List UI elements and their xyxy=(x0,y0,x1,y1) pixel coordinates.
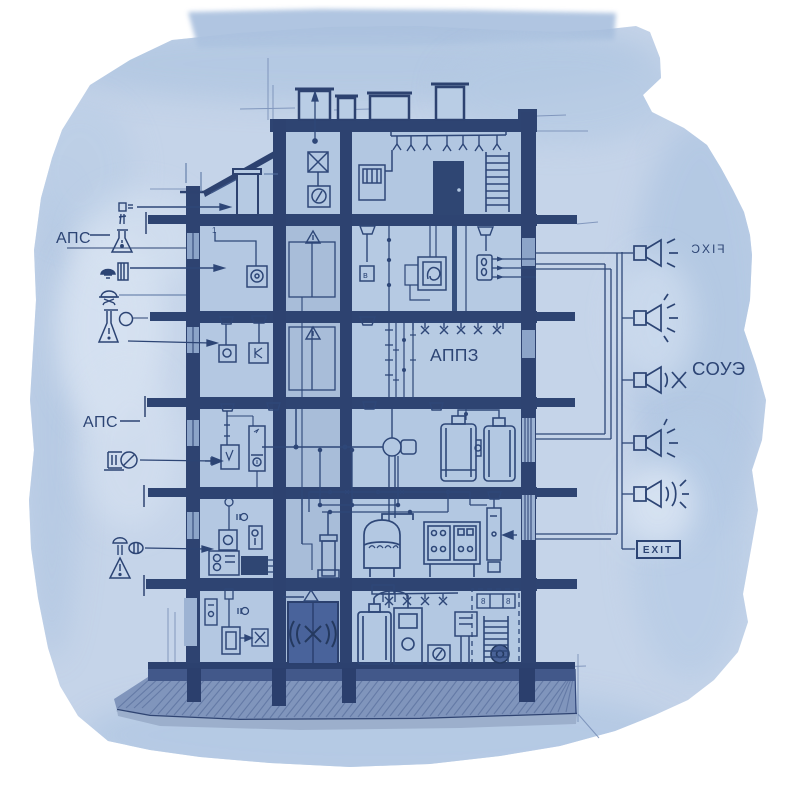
svg-text:АПС: АПС xyxy=(83,414,118,431)
svg-text:СОУЭ: СОУЭ xyxy=(692,358,746,379)
svg-text:в: в xyxy=(363,270,368,280)
svg-text:8: 8 xyxy=(481,597,486,606)
svg-text:АПС: АПС xyxy=(56,230,91,247)
svg-text:EXIT: EXIT xyxy=(643,545,673,556)
svg-text:АППЗ: АППЗ xyxy=(430,345,479,365)
svg-text:1: 1 xyxy=(212,226,217,235)
svg-text:FIXC: FIXC xyxy=(689,242,724,256)
svg-text:8: 8 xyxy=(506,597,511,606)
